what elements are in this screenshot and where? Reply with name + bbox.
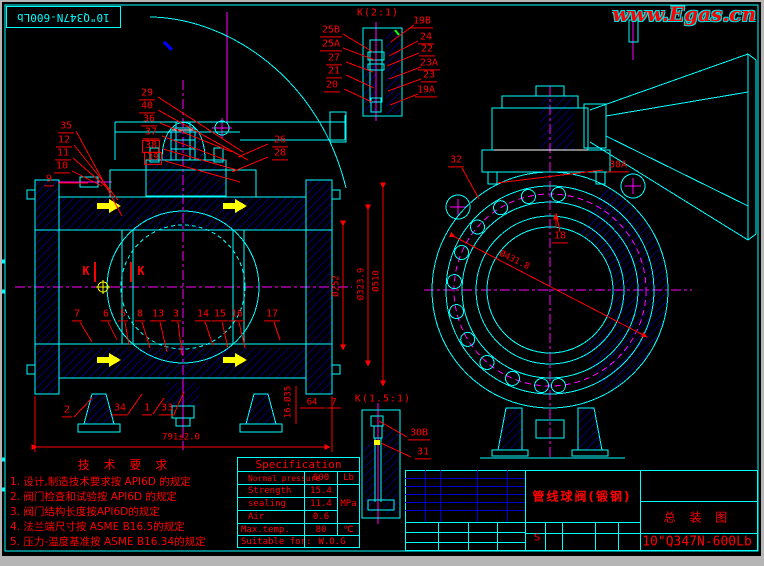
part-callout-36: 36 [141,114,157,126]
spec-unit-mpa: MPa [337,484,360,524]
part-callout-2: 2 [62,405,72,417]
part-callout-29: 29 [139,88,155,100]
part-callout-7: 7 [72,309,82,321]
title-block-grid-line [497,522,498,551]
part-callout-28: 28 [272,148,288,160]
part-callout-35: 35 [58,121,74,133]
section-mark-k-right: K [137,264,144,278]
part-callout-19A: 19A [415,85,437,97]
part-callout-25A: 25A [320,39,342,51]
part-callout-23: 23 [421,70,437,82]
title-block-grid-line [405,494,525,495]
spec-row-value: 600 [304,471,338,485]
title-block-grid-line [562,522,563,551]
spec-row-value: 15.4 [304,484,338,498]
part-callout-6: 6 [101,309,111,321]
corner-model-tag: 10"Q347N-600Lb [6,6,121,28]
section-mark-k-left: K [82,264,89,278]
part-callout-20: 20 [324,80,340,92]
title-block-grid-line [405,486,525,487]
part-callout-25B: 25B [320,25,342,37]
spec-row-label: sealing [237,497,305,511]
part-callout-19B: 19B [411,16,433,28]
title-block-grid-line [405,522,640,523]
title-block-grid-line [595,522,596,551]
cad-drawing-canvas: 10"Q347N-600Lb www.Egas.cn K(2:1) K(1.5:… [0,0,764,566]
part-callout-5: 5 [118,309,128,321]
dimension-text: 16-Ø35 [285,386,294,419]
title-block-grid-line [545,522,546,551]
window-edge-top [0,0,764,2]
title-block-cell-s: S [534,533,540,544]
part-callout-40: 40 [139,101,155,113]
part-callout-33: 33 [159,403,175,415]
part-callout-16: 16 [229,309,245,321]
dimension-text: Ø252 [333,275,342,297]
title-block-product-name: 管线球阀(锻钢) [533,488,632,505]
title-block-grid-line [525,533,640,534]
spec-row-value: 11.4 [304,497,338,511]
watermark: www.Egas.cn [612,2,756,26]
title-block-grid-line [640,470,641,551]
title-block-grid-line [438,522,439,551]
part-callout-8: 8 [135,309,145,321]
part-callout-18: 18 [552,231,568,243]
part-callout-31: 31 [415,447,431,459]
dimension-text: 64 [307,399,318,408]
part-callout-10: 10 [54,161,70,173]
title-block-grid-line [405,542,525,543]
title-block-grid-line [405,510,525,511]
title-block-grid-line [618,522,619,551]
spec-row-value: 0.6 [304,510,338,524]
technical-requirement-item: 3. 阀门结构长度按API6D的规定 [10,505,240,520]
part-callout-17: 17 [264,309,280,321]
part-callout-34: 34 [112,403,128,415]
title-block-drawing-type: 总 装 图 [664,509,733,526]
part-callout-32: 32 [448,155,464,167]
dimension-text: Ø323.9 [358,268,367,301]
part-callout-21: 21 [326,66,342,78]
technical-requirements-list: 1. 设计,制造技术要求按 API6D 的规定2. 阀门检查和试验按 API6D… [10,475,240,550]
spec-row-label: Strength [237,484,305,498]
technical-requirement-item: 2. 阀门检查和试验按 API6D 的规定 [10,490,240,505]
part-callout-26: 26 [272,135,288,147]
detail-k15-title: K(1.5:1) [355,394,411,405]
title-block-model: 10"Q347N-600Lb [642,535,752,550]
part-callout-13: 13 [150,309,166,321]
part-callout-14: 14 [195,309,211,321]
dimension-text: 791±2.0 [162,434,200,443]
window-edge-left [0,0,2,556]
technical-requirement-item: 1. 设计,制造技术要求按 API6D 的规定 [10,475,240,490]
spec-row-label: Normal pressure [237,471,305,485]
title-block-grid-line [468,522,469,551]
part-callout-22: 22 [419,44,435,56]
title-block-grid-line [405,502,525,503]
part-callout-15: 15 [212,309,228,321]
technical-requirements-title: 技 术 要 求 [10,456,240,473]
part-callout-11: 11 [55,148,71,160]
part-callout-37: 37 [143,127,159,139]
title-block-grid-line [640,501,758,502]
corner-model-tag-text: 10"Q347N-600Lb [17,11,110,24]
technical-requirement-item: 5. 压力-温度基准按 ASME B16.34的规定 [10,535,240,550]
section-hatching [35,32,667,514]
title-block-grid-line [405,532,525,533]
spec-row-label: Air [237,510,305,524]
part-callout-12: 12 [56,135,72,147]
part-callout-30A: 30A [607,160,629,172]
spec-title: Specification [237,457,360,472]
technical-requirement-item: 4. 法兰端尺寸按 ASME B16.5的规定 [10,520,240,535]
title-block-grid-line [405,478,525,479]
part-callout-27: 27 [326,53,342,65]
dimension-text: Ø510 [373,270,382,292]
dimension-text: 7 [331,399,336,408]
title-block-grid-line [525,470,526,551]
part-callout-3: 3 [171,309,181,321]
part-callout-30B: 30B [408,428,430,440]
part-callout-39: 39 [144,152,162,165]
part-callout-9: 9 [44,174,54,186]
spec-footer-value: W.O.G [304,535,360,548]
part-callout-1: 1 [142,403,152,415]
spec-row-unit: Lb [337,471,360,485]
detail-k2-title: K(2:1) [357,8,399,19]
technical-requirements: 技 术 要 求 1. 设计,制造技术要求按 API6D 的规定2. 阀门检查和试… [10,456,240,550]
window-edge-bottom [0,556,764,566]
spec-footer-label: Suitable for: [237,535,305,548]
